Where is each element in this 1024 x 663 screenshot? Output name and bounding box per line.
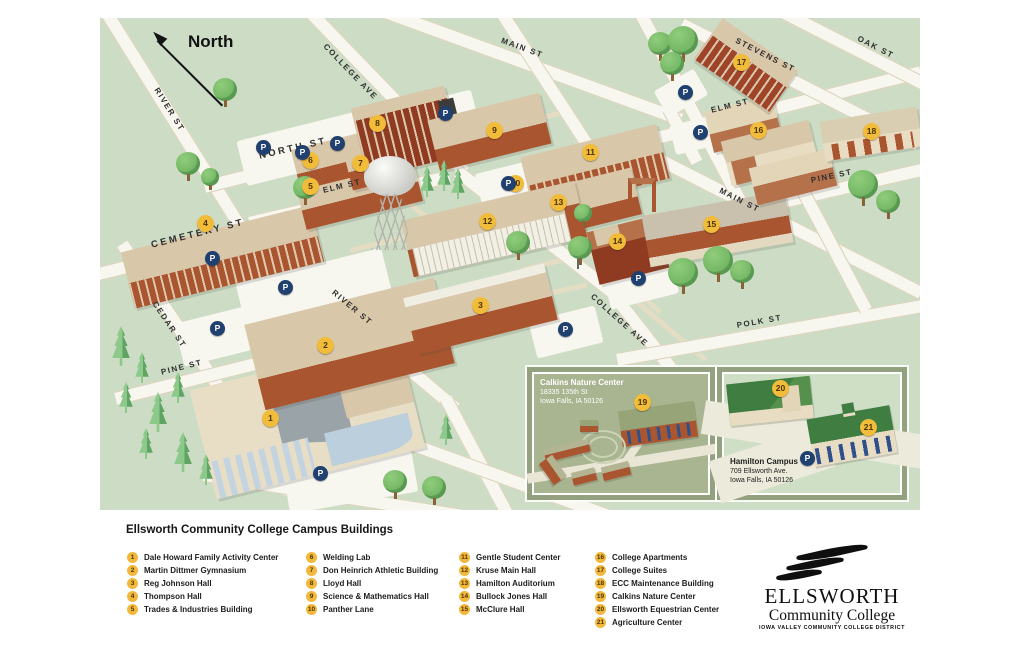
map-marker-14: 14 [609,233,626,250]
legend-badge: 9 [306,591,317,602]
legend-badge: 12 [459,565,470,576]
college-logo: ELLSWORTH Community College IOWA VALLEY … [752,546,912,636]
map-marker-21: 21 [860,419,877,436]
hamilton-title: Hamilton Campus [730,457,798,466]
legend-label: Agriculture Center [612,618,682,627]
pine-tree [132,352,152,383]
map-marker-2: 2 [317,337,334,354]
parking-marker: P [330,136,345,151]
map-marker-17: 17 [733,54,750,71]
map-marker-3: 3 [472,297,489,314]
legend-badge: 11 [459,552,470,563]
legend-label: College Apartments [612,553,687,562]
map-marker-18: 18 [863,123,880,140]
north-label: North [188,32,233,52]
legend-label: Calkins Nature Center [612,592,696,601]
legend-label: Trades & Industries Building [144,605,252,614]
legend-label: Lloyd Hall [323,579,361,588]
tree [568,236,592,265]
legend-label: Dale Howard Family Activity Center [144,553,278,562]
tree [383,470,407,499]
calkins-title: Calkins Nature Center [540,378,624,387]
map-marker-16: 16 [750,122,767,139]
legend-badge: 15 [459,604,470,615]
water-tower-legs [371,194,411,250]
parking-marker: P [256,140,271,155]
legend-badge: 8 [306,578,317,589]
calkins-address-1: 18335 135th St [540,389,588,398]
hamilton-address-1: 709 Ellsworth Ave. [730,468,787,477]
calkins-address-2: Iowa Falls, IA 50126 [540,398,603,407]
legend-badge: 13 [459,578,470,589]
amphitheater-ring [588,436,618,458]
legend-badge: 16 [595,552,606,563]
map-marker-13: 13 [550,194,567,211]
map-marker-7: 7 [352,155,369,172]
legend-label: Thompson Hall [144,592,202,601]
tree [876,190,900,219]
calkins-inset: Calkins Nature Center 18335 135th St Iow… [527,367,715,500]
hamilton-address-2: Iowa Falls, IA 50126 [730,477,793,486]
map-marker-8: 8 [369,115,386,132]
north-indicator: North [130,28,300,123]
campus-arch [628,178,656,212]
map-marker-12: 12 [479,213,496,230]
campus-map: RIVER ST RIVER ST CEDAR ST COLLEGE AVE C… [100,18,920,510]
pine-tree [136,428,156,459]
parking-marker: P [205,251,220,266]
legend-badge: 3 [127,578,138,589]
parking-marker: P [631,271,646,286]
legend-badge: 17 [595,565,606,576]
tree [201,168,219,190]
water-tower [364,156,418,256]
calkins-shed [580,420,598,432]
map-marker-5: 5 [302,178,319,195]
legend-label: Ellsworth Equestrian Center [612,605,719,614]
legend-badge: 4 [127,591,138,602]
tree [668,258,698,294]
parking-marker: P [501,176,516,191]
parking-marker: P [693,125,708,140]
legend-badge: 5 [127,604,138,615]
map-marker-20: 20 [772,380,789,397]
map-marker-11: 11 [582,144,599,161]
map-marker-19: 19 [634,394,651,411]
parking-marker: P [295,145,310,160]
legend-badge: 21 [595,617,606,628]
tree [422,476,446,505]
logo-type: Community College [752,607,912,625]
legend-label: College Suites [612,566,667,575]
parking-marker: P [558,322,573,337]
parking-marker: P [210,321,225,336]
hamilton-equestrian [726,376,814,427]
tree [574,204,592,226]
legend-label: Gentle Student Center [476,553,560,562]
legend-label: Martin Dittmer Gymnasium [144,566,246,575]
parking-marker: P [313,466,328,481]
tree [176,152,200,181]
parking-marker: P [278,280,293,295]
legend-badge: 19 [595,591,606,602]
parking-marker: P [678,85,693,100]
legend-title: Ellsworth Community College Campus Build… [126,524,393,536]
lodge-windows [627,423,692,444]
legend-label: McClure Hall [476,605,524,614]
pine-tree [108,326,134,366]
legend-badge: 14 [459,591,470,602]
map-marker-4: 4 [197,215,214,232]
legend-badge: 20 [595,604,606,615]
legend-label: Hamilton Auditorium [476,579,555,588]
legend-label: Bullock Jones Hall [476,592,547,601]
parking-marker: P [438,106,453,121]
hamilton-inset: 20 21 P Hamilton Campus 709 Ellsworth Av… [717,367,907,500]
legend-badge: 2 [127,565,138,576]
agriculture-cupola [841,402,855,417]
tree [703,246,733,282]
pine-tree [145,392,171,432]
page: { "map": { "north_label": "North", "park… [0,0,1024,663]
map-marker-15: 15 [703,216,720,233]
tree [660,52,684,81]
legend-label: Welding Lab [323,553,370,562]
logo-district: IOWA VALLEY COMMUNITY COLLEGE DISTRICT [752,625,912,631]
legend-badge: 10 [306,604,317,615]
legend-label: Panther Lane [323,605,374,614]
legend-label: Reg Johnson Hall [144,579,212,588]
map-marker-1: 1 [262,410,279,427]
calkins-lodge [618,401,698,447]
north-arrow-head [150,28,168,46]
legend-label: ECC Maintenance Building [612,579,714,588]
pine-tree [170,432,196,472]
legend-label: Kruse Main Hall [476,566,536,575]
legend-badge: 1 [127,552,138,563]
water-tower-dome [364,156,416,196]
legend-badge: 18 [595,578,606,589]
tree [506,231,530,260]
legend-label: Don Heinrich Athletic Building [323,566,438,575]
map-marker-9: 9 [486,122,503,139]
parking-marker: P [800,451,815,466]
tree [730,260,754,289]
logo-name: ELLSWORTH [752,584,912,609]
legend-badge: 7 [306,565,317,576]
legend-badge: 6 [306,552,317,563]
legend-label: Science & Mathematics Hall [323,592,429,601]
